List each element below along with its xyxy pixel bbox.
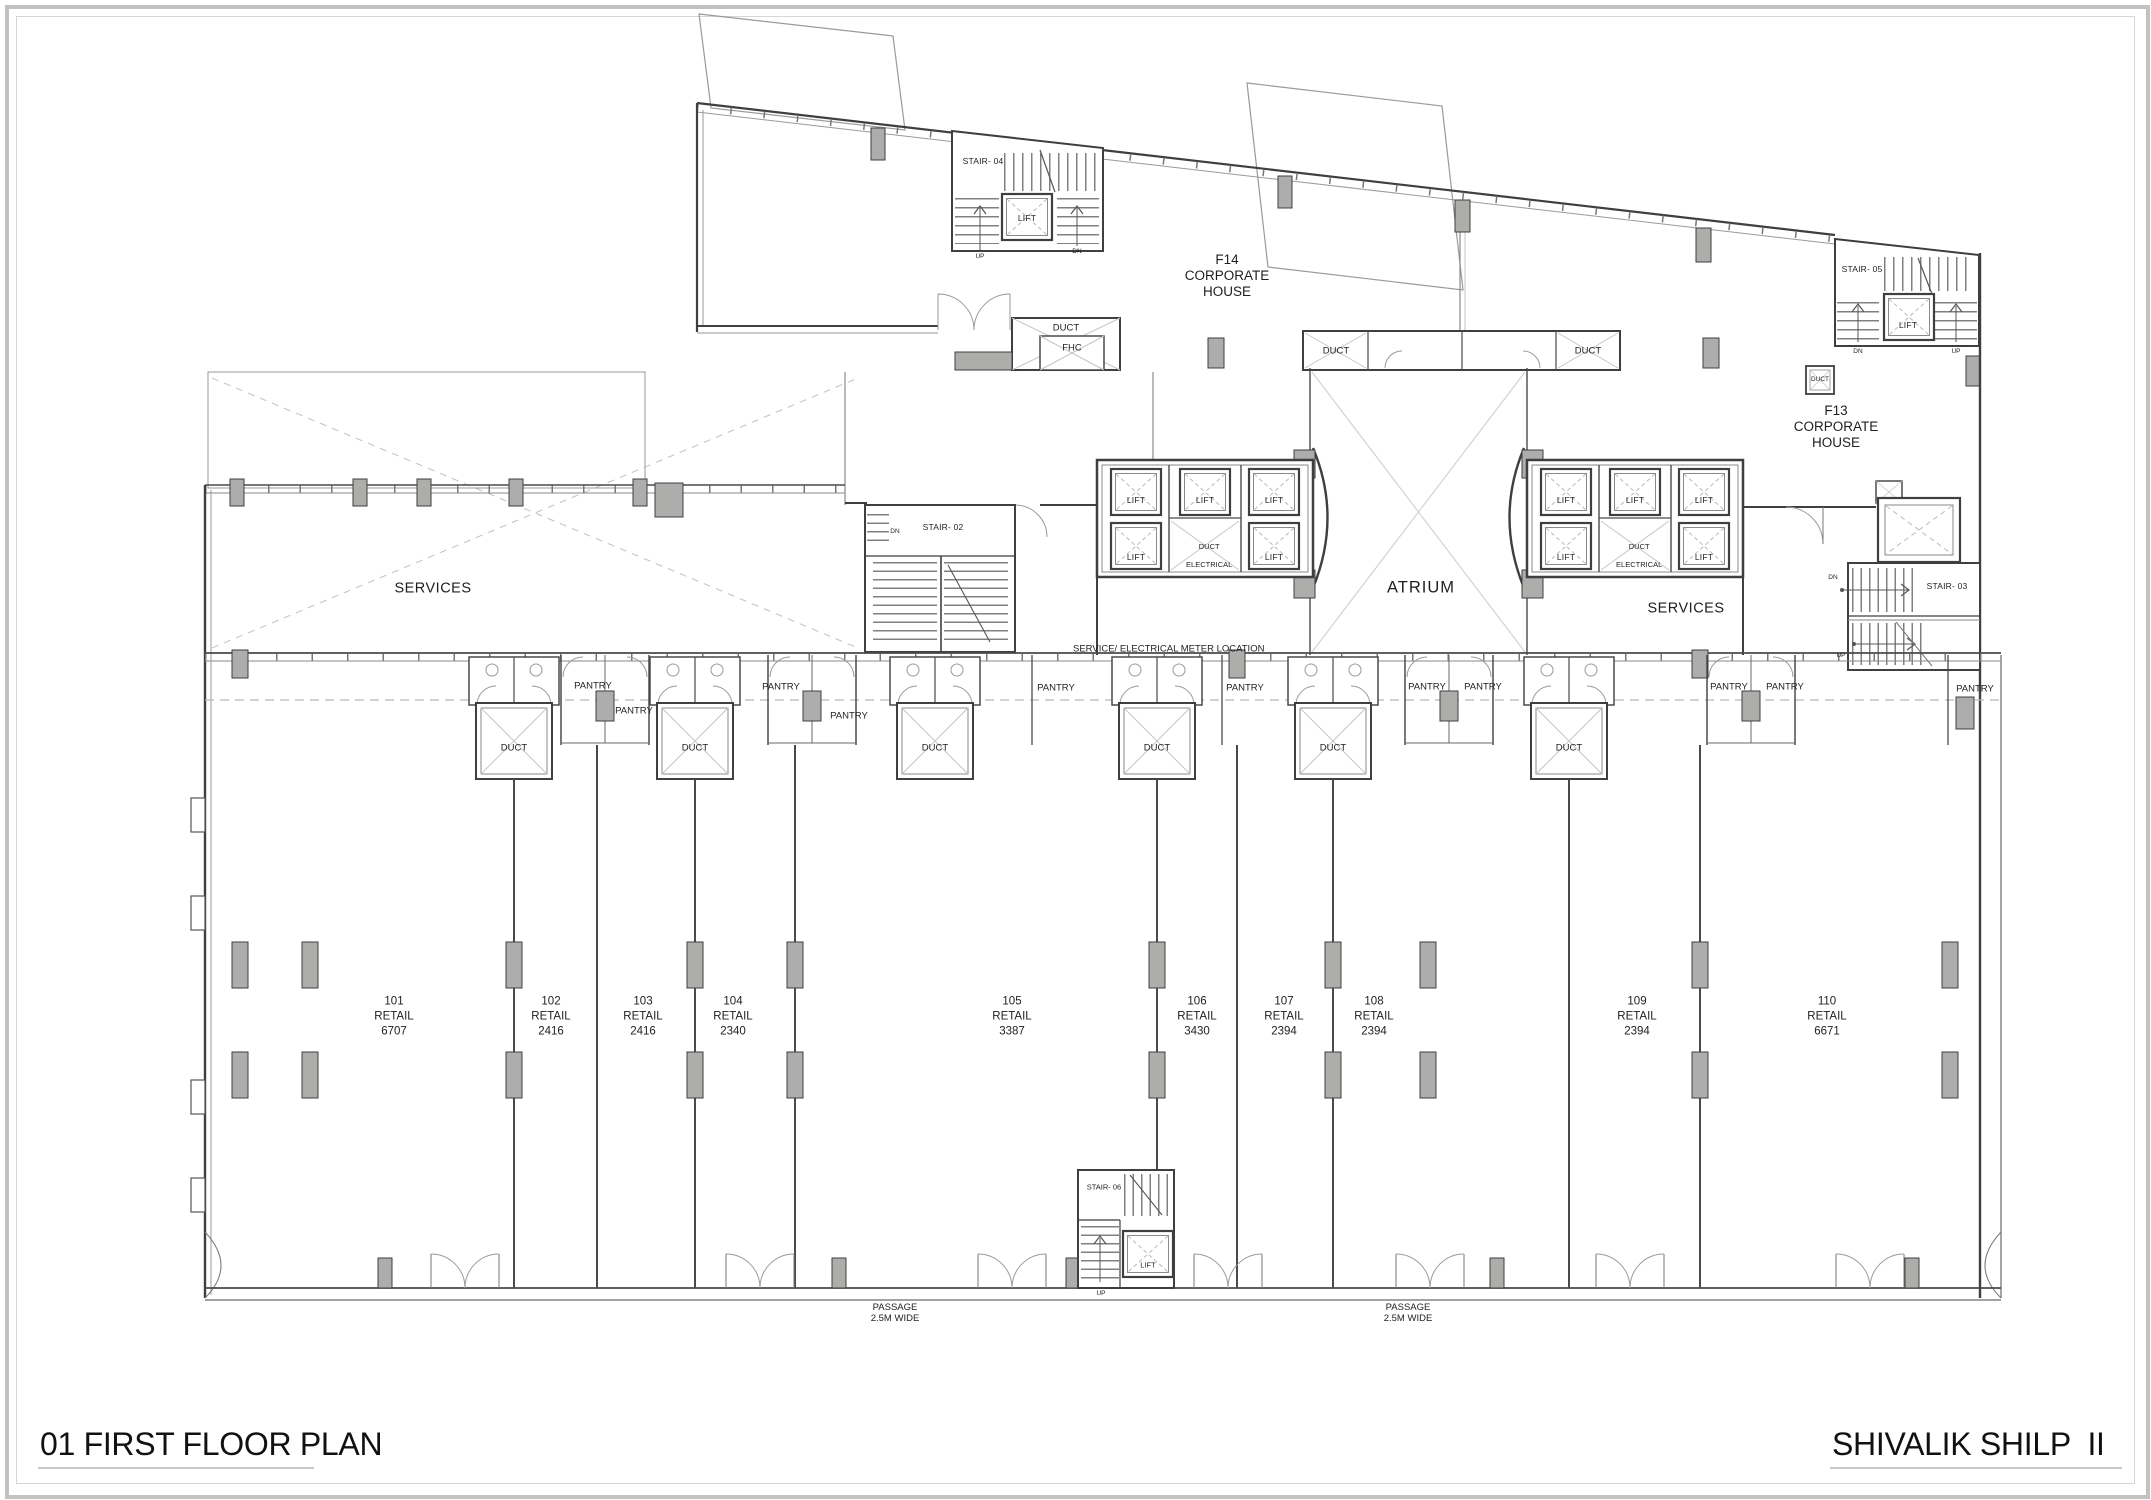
project-title-underline [1830,1467,2122,1469]
stair-04-dn-label: DN [1072,248,1081,256]
unit-id: 102 [531,995,570,1010]
unit-area: 2394 [1354,1025,1393,1040]
unit-102-label: 102RETAIL2416 [531,995,570,1040]
pantry-label: PANTRY [1464,681,1502,692]
unit-106-label: 106RETAIL3430 [1177,995,1216,1040]
unit-id: 104 [713,995,752,1010]
pantry-label: PANTRY [574,680,612,691]
duct-label: DUCT [1320,742,1346,753]
duct-label: DUCT [1144,742,1170,753]
unit-area: 2340 [713,1025,752,1040]
unit-area: 2416 [531,1025,570,1040]
unit-area: 6707 [374,1025,413,1040]
f13-name-2: HOUSE [1812,435,1860,451]
unit-id: 106 [1177,995,1216,1010]
unit-use: RETAIL [623,1010,662,1025]
duct-label-atrium-left: DUCT [1323,345,1349,356]
stair-05-up-label: UP [1951,348,1960,356]
duct-electrical-line2: ELECTRICAL [1186,559,1232,568]
services-outline [208,372,645,488]
unit-id: 103 [623,995,662,1010]
pantry-label: PANTRY [1408,681,1446,692]
meter-location-note: SERVICE/ ELECTRICAL METER LOCATION [1073,643,1264,654]
slanted-top-wall [697,103,1835,244]
lift-label: LIFT [1127,552,1145,562]
stair-05-duct-label: DUCT [1811,376,1829,384]
stair-06-up-label: UP [1096,1290,1105,1298]
unit-use: RETAIL [992,1010,1031,1025]
atrium-label: ATRIUM [1387,578,1455,597]
unit-108-label: 108RETAIL2394 [1354,995,1393,1040]
duct-label: DUCT [682,742,708,753]
unit-use: RETAIL [1264,1010,1303,1025]
services-dashed-area [212,378,858,648]
unit-use: RETAIL [1807,1010,1846,1025]
unit-103-label: 103RETAIL2416 [623,995,662,1040]
duct-label: DUCT [922,742,948,753]
project-title: SHIVALIK SHILP II [1832,1426,2105,1464]
fhc-label: FHC [1062,342,1082,353]
band-interior [205,655,2001,779]
lift-label: LIFT [1265,552,1283,562]
stair-03 [1840,481,1980,670]
fhc-duct-label: DUCT [1053,322,1079,333]
lift-label: LIFT [1695,552,1713,562]
stair-02-dn-label: DN [890,528,899,536]
duct-electrical-line1: DUCT [1629,542,1650,551]
stair-04-up-label: UP [975,253,984,261]
duct-label: DUCT [501,742,527,753]
unit-id: 110 [1807,995,1846,1010]
unit-use: RETAIL [713,1010,752,1025]
stair-04 [952,131,1103,251]
passage-line2: 2.5M WIDE [871,1313,920,1324]
pantry-label: PANTRY [615,705,653,716]
f14-name-2: HOUSE [1203,284,1251,300]
unit-area: 2416 [623,1025,662,1040]
f13-name-1: CORPORATE [1794,419,1879,435]
unit-id: 109 [1617,995,1656,1010]
lift-label: LIFT [1695,495,1713,505]
f13-id: F13 [1824,403,1847,419]
unit-area: 2394 [1264,1025,1303,1040]
unit-use: RETAIL [1177,1010,1216,1025]
pantry-label: PANTRY [1710,681,1748,692]
stair-05-lift-label: LIFT [1899,320,1917,330]
unit-use: RETAIL [374,1010,413,1025]
lift-label: LIFT [1557,552,1575,562]
unit-107-label: 107RETAIL2394 [1264,995,1303,1040]
pantry-label: PANTRY [1226,682,1264,693]
stair-04-label: STAIR- 04 [963,156,1004,166]
unit-id: 108 [1354,995,1393,1010]
stair-06-lift-label: LIFT [1140,1262,1155,1271]
stair-05 [1806,239,1979,394]
unit-use: RETAIL [1354,1010,1393,1025]
f14-id: F14 [1215,252,1238,268]
duct-electrical-label-right: DUCT ELECTRICAL [1608,534,1663,578]
plan-title: 01 FIRST FLOOR PLAN [40,1426,382,1464]
passage-note-right: PASSAGE2.5M WIDE [1384,1302,1433,1324]
unit-id: 101 [374,995,413,1010]
pantry-label: PANTRY [762,681,800,692]
services-right-label: SERVICES [1647,600,1724,617]
services-left-label: SERVICES [394,580,471,597]
floor-plan-sheet: STAIR- 04 LIFT UP DN DUCT FHC F14 CORPOR… [0,0,2151,1500]
passage-line1: PASSAGE [1384,1302,1433,1313]
pantry-label: PANTRY [1037,682,1075,693]
unit-104-label: 104RETAIL2340 [713,995,752,1040]
lift-label: LIFT [1626,495,1644,505]
stair-03-label: STAIR- 03 [1927,581,1968,591]
pantry-label: PANTRY [1956,683,1994,694]
duct-label-atrium-right: DUCT [1575,345,1601,356]
stair-05-label: STAIR- 05 [1842,264,1883,274]
unit-area: 6671 [1807,1025,1846,1040]
unit-110-label: 110RETAIL6671 [1807,995,1846,1040]
right-outer-wall [1980,253,2001,1298]
plan-title-underline [38,1467,314,1469]
lift-label: LIFT [1196,495,1214,505]
unit-105-label: 105RETAIL3387 [992,995,1031,1040]
unit-id: 105 [992,995,1031,1010]
unit-101-label: 101RETAIL6707 [374,995,413,1040]
duct-label: DUCT [1556,742,1582,753]
passage-line1: PASSAGE [871,1302,920,1313]
unit-area: 3430 [1177,1025,1216,1040]
f14-name-1: CORPORATE [1185,268,1270,284]
services-top-wall [205,479,845,517]
unit-area: 2394 [1617,1025,1656,1040]
lift-label: LIFT [1557,495,1575,505]
floorplan-linework [0,0,2151,1500]
unit-area: 3387 [992,1025,1031,1040]
stair-03-dn-label: DN [1828,574,1837,582]
duct-electrical-line2: ELECTRICAL [1616,559,1662,568]
unit-109-label: 109RETAIL2394 [1617,995,1656,1040]
duct-electrical-line1: DUCT [1199,542,1220,551]
lift-label: LIFT [1265,495,1283,505]
stair-03-up-label: UP [1836,652,1845,660]
stair-02-label: STAIR- 02 [923,522,964,532]
unit-id: 107 [1264,995,1303,1010]
stair-04-lift-label: LIFT [1018,213,1036,223]
stair-06-label: STAIR- 06 [1087,1184,1121,1193]
duct-electrical-label-left: DUCT ELECTRICAL [1178,534,1233,578]
pantry-label: PANTRY [830,710,868,721]
passage-note-left: PASSAGE2.5M WIDE [871,1302,920,1324]
unit-use: RETAIL [1617,1010,1656,1025]
lift-label: LIFT [1127,495,1145,505]
pantry-label: PANTRY [1766,681,1804,692]
passage-line2: 2.5M WIDE [1384,1313,1433,1324]
unit-use: RETAIL [531,1010,570,1025]
stair-05-dn-label: DN [1853,348,1862,356]
